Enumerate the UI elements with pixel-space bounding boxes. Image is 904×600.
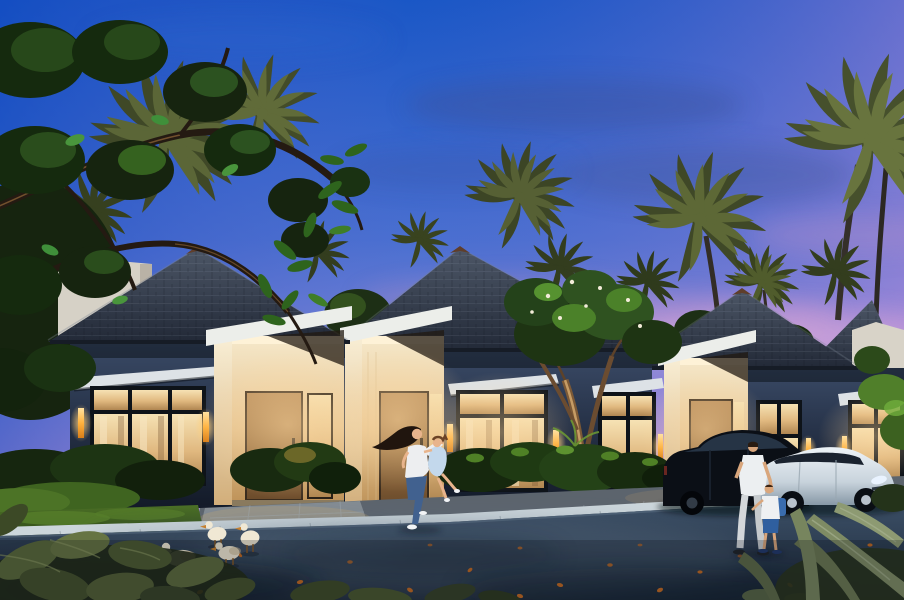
villa-dusk-rendering xyxy=(0,0,904,600)
grass-highlight xyxy=(95,508,185,520)
bottom-vignette xyxy=(0,540,904,600)
scene-canvas xyxy=(0,0,904,600)
